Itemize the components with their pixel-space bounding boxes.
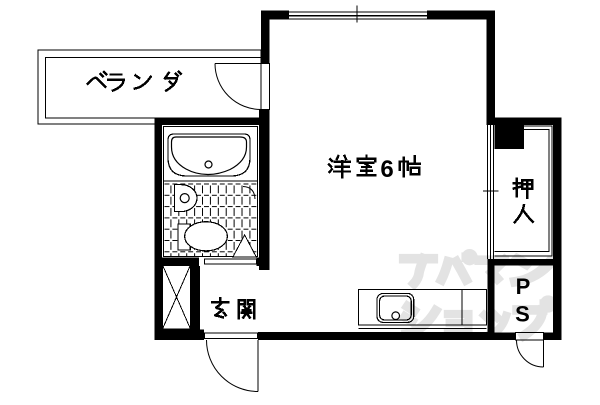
- svg-text:6: 6: [380, 156, 393, 183]
